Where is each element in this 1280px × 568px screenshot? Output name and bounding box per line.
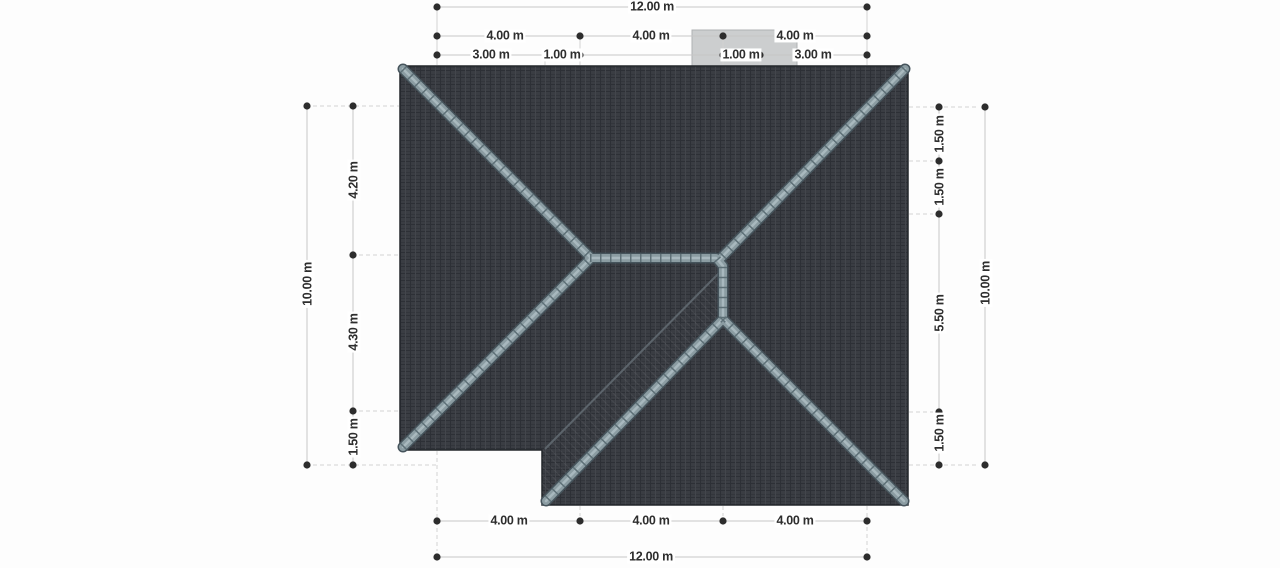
dim-left-segment: 4.20 m bbox=[347, 159, 360, 200]
dim-top-segment: 4.00 m bbox=[774, 29, 815, 42]
dim-top-segment: 3.00 m bbox=[792, 48, 833, 61]
roof-surface bbox=[400, 66, 908, 505]
dim-top-segment: 4.00 m bbox=[630, 29, 671, 42]
dim-left-segment: 4.30 m bbox=[347, 311, 360, 352]
dim-bottom-segment: 4.00 m bbox=[774, 514, 815, 527]
dim-left-segment: 1.50 m bbox=[347, 416, 360, 457]
dim-left-overall: 10.00 m bbox=[301, 260, 314, 308]
dim-right-segment: 1.50 m bbox=[933, 412, 946, 453]
dim-right-segment: 1.50 m bbox=[933, 166, 946, 207]
dim-top-segment: 3.00 m bbox=[470, 48, 511, 61]
dim-bottom-segment: 4.00 m bbox=[488, 514, 529, 527]
dim-right-overall: 10.00 m bbox=[979, 259, 992, 307]
dim-top-segment: 1.00 m bbox=[720, 48, 761, 61]
roof-plan-drawing bbox=[0, 0, 1280, 568]
dim-right-segment: 1.50 m bbox=[933, 113, 946, 154]
dim-right-segment: 5.50 m bbox=[933, 292, 946, 333]
dim-bottom-overall: 12.00 m bbox=[627, 550, 675, 563]
dim-bottom-segment: 4.00 m bbox=[630, 514, 671, 527]
roof-plan-canvas: 12.00 m 4.00 m 4.00 m 4.00 m 3.00 m 1.00… bbox=[0, 0, 1280, 568]
dim-top-overall: 12.00 m bbox=[628, 0, 676, 13]
dim-top-segment: 1.00 m bbox=[541, 48, 582, 61]
dim-top-segment: 4.00 m bbox=[484, 29, 525, 42]
